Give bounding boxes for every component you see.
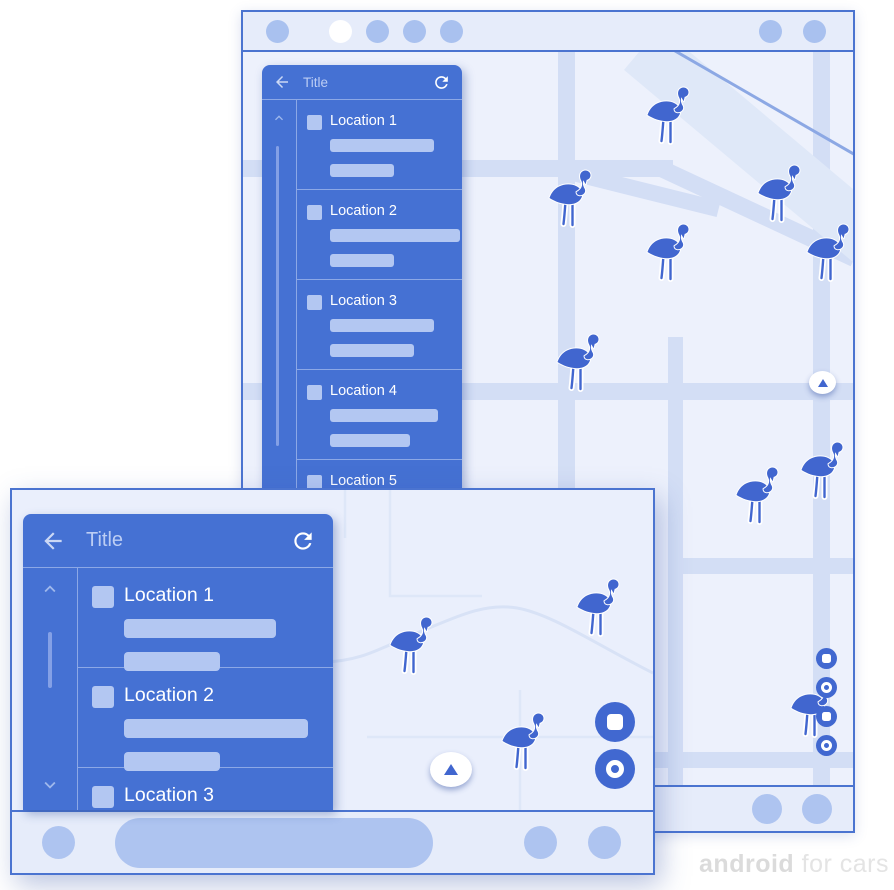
- scrollbar-thumb[interactable]: [48, 632, 52, 688]
- map-road: [673, 558, 853, 574]
- flamingo-icon: [806, 222, 852, 282]
- status-dot: [440, 20, 463, 43]
- map-action-button-square[interactable]: [816, 706, 837, 727]
- app-bar-pill-placeholder: [115, 818, 433, 868]
- list-item-label: Location 1: [124, 584, 276, 607]
- panel-title: Title: [86, 529, 123, 552]
- text-placeholder-bar: [330, 344, 414, 357]
- status-dot-active: [329, 20, 352, 43]
- list-item-label: Location 2: [330, 203, 460, 219]
- text-placeholder-bar: [330, 139, 434, 152]
- text-placeholder-bar: [124, 619, 276, 638]
- ring-icon: [821, 740, 832, 751]
- panel-header: Title: [262, 65, 462, 100]
- scroll-up-button[interactable]: [39, 578, 61, 600]
- refresh-button[interactable]: [290, 528, 316, 554]
- list-item-label: Location 3: [124, 784, 276, 807]
- place-square-icon: [92, 686, 114, 708]
- scroll-rail: [23, 568, 78, 810]
- flamingo-map-marker[interactable]: [548, 168, 594, 228]
- refresh-icon: [432, 73, 451, 92]
- refresh-icon: [290, 528, 316, 554]
- back-button[interactable]: [40, 528, 66, 554]
- landscape-device-frame: Title Location 1: [10, 488, 655, 875]
- map-action-button-circle[interactable]: [816, 735, 837, 756]
- map-action-button-circle[interactable]: [595, 749, 635, 789]
- list-item[interactable]: Location 3: [78, 768, 333, 810]
- panel-body: Location 1 Location 2 Location 3 Locatio…: [262, 100, 462, 525]
- bottom-dots-right: [524, 826, 621, 859]
- portrait-location-list: Location 1 Location 2 Location 3 Locatio…: [297, 100, 462, 525]
- list-item-label: Location 4: [330, 383, 438, 399]
- text-placeholder-bar: [330, 254, 394, 267]
- status-dot: [42, 826, 75, 859]
- status-dot: [366, 20, 389, 43]
- flamingo-icon: [646, 85, 692, 145]
- chevron-up-icon: [271, 110, 287, 126]
- portrait-status-bar: [243, 12, 853, 52]
- landscape-location-list: Location 1 Location 2 Location 3: [78, 568, 333, 810]
- flamingo-icon: [757, 163, 803, 223]
- flamingo-map-marker[interactable]: [735, 465, 781, 525]
- map-action-strip: [816, 648, 837, 756]
- flamingo-icon: [556, 332, 602, 392]
- list-item[interactable]: Location 2: [78, 668, 333, 768]
- list-item[interactable]: Location 1: [297, 100, 462, 190]
- list-item-label: Location 1: [330, 113, 434, 129]
- compass-button[interactable]: [430, 752, 472, 787]
- flamingo-map-marker[interactable]: [501, 711, 547, 771]
- map-action-button-square[interactable]: [816, 648, 837, 669]
- panel-header: Title: [23, 514, 333, 568]
- list-item[interactable]: Location 2: [297, 190, 462, 280]
- status-dot: [752, 794, 782, 824]
- list-item[interactable]: Location 3: [297, 280, 462, 370]
- navigation-triangle-icon: [818, 379, 828, 387]
- refresh-button[interactable]: [432, 73, 451, 92]
- text-placeholder-bar: [330, 319, 434, 332]
- status-dot: [802, 794, 832, 824]
- place-square-icon: [92, 586, 114, 608]
- panel-body: Location 1 Location 2 Location 3: [23, 568, 333, 810]
- ring-icon: [606, 760, 624, 778]
- text-placeholder-bar: [330, 229, 460, 242]
- bottom-dots: [732, 794, 832, 824]
- watermark-brand: android: [699, 850, 794, 878]
- status-dot: [266, 20, 289, 43]
- text-placeholder-bar: [330, 434, 410, 447]
- chevron-up-icon: [39, 578, 61, 600]
- place-square-icon: [92, 786, 114, 808]
- scrollbar-thumb[interactable]: [276, 146, 279, 446]
- bottom-dot-left: [12, 826, 75, 859]
- square-icon: [822, 654, 831, 663]
- list-item-text-block: Location 3: [330, 293, 434, 369]
- landscape-bottom-bar: [12, 810, 653, 873]
- flamingo-icon: [800, 440, 846, 500]
- list-item-label: Location 2: [124, 684, 308, 707]
- place-square-icon: [307, 295, 322, 310]
- flamingo-icon: [548, 168, 594, 228]
- flamingo-map-marker[interactable]: [576, 577, 622, 637]
- place-square-icon: [307, 205, 322, 220]
- map-action-button-square[interactable]: [595, 702, 635, 742]
- flamingo-map-marker[interactable]: [757, 163, 803, 223]
- list-item-text-block: Location 1: [124, 584, 276, 667]
- scroll-down-button[interactable]: [39, 774, 61, 796]
- flamingo-map-marker[interactable]: [800, 440, 846, 500]
- flamingo-icon: [576, 577, 622, 637]
- status-dot: [759, 20, 782, 43]
- text-placeholder-bar: [124, 652, 220, 671]
- map-action-strip: [595, 702, 635, 789]
- list-item-label: Location 3: [330, 293, 434, 309]
- list-item-text-block: Location 3: [124, 784, 276, 810]
- chevron-down-icon: [39, 774, 61, 796]
- panel-title: Title: [303, 75, 328, 90]
- flamingo-map-marker[interactable]: [806, 222, 852, 282]
- place-square-icon: [307, 385, 322, 400]
- scroll-up-button[interactable]: [271, 110, 287, 126]
- portrait-list-panel: Title Location 1 Locati: [262, 65, 462, 525]
- navigation-triangle-icon: [444, 764, 458, 775]
- flamingo-map-marker[interactable]: [646, 222, 692, 282]
- place-square-icon: [307, 115, 322, 130]
- square-icon: [607, 714, 623, 730]
- list-item-text-block: Location 2: [330, 203, 460, 279]
- flamingo-icon: [389, 615, 435, 675]
- landscape-list-panel: Title Location 1: [23, 514, 333, 810]
- text-placeholder-bar: [330, 409, 438, 422]
- watermark-suffix: for cars: [794, 850, 889, 878]
- square-icon: [822, 712, 831, 721]
- status-dot: [403, 20, 426, 43]
- map-action-button-circle[interactable]: [816, 677, 837, 698]
- flamingo-icon: [501, 711, 547, 771]
- status-dots-right: [738, 20, 826, 43]
- list-item-text-block: Location 4: [330, 383, 438, 459]
- list-item-text-block: Location 1: [330, 113, 434, 189]
- back-button[interactable]: [273, 73, 291, 91]
- arrow-left-icon: [40, 528, 66, 554]
- status-dot: [588, 826, 621, 859]
- flamingo-map-marker[interactable]: [389, 615, 435, 675]
- compass-button[interactable]: [809, 371, 836, 394]
- flamingo-map-marker[interactable]: [646, 85, 692, 145]
- status-dot: [803, 20, 826, 43]
- watermark: android for cars: [699, 850, 889, 879]
- arrow-left-icon: [273, 73, 291, 91]
- ring-icon: [821, 682, 832, 693]
- list-item-text-block: Location 2: [124, 684, 308, 767]
- list-item[interactable]: Location 4: [297, 370, 462, 460]
- design-canvas: android for cars: [0, 0, 894, 890]
- scroll-rail: [262, 100, 297, 525]
- list-item[interactable]: Location 1: [78, 568, 333, 668]
- flamingo-icon: [646, 222, 692, 282]
- flamingo-map-marker[interactable]: [556, 332, 602, 392]
- text-placeholder-bar: [124, 752, 220, 771]
- flamingo-icon: [735, 465, 781, 525]
- text-placeholder-bar: [124, 719, 308, 738]
- status-dot: [524, 826, 557, 859]
- status-dots-left: [243, 20, 463, 43]
- list-item-label: Location 5: [330, 473, 434, 489]
- text-placeholder-bar: [330, 164, 394, 177]
